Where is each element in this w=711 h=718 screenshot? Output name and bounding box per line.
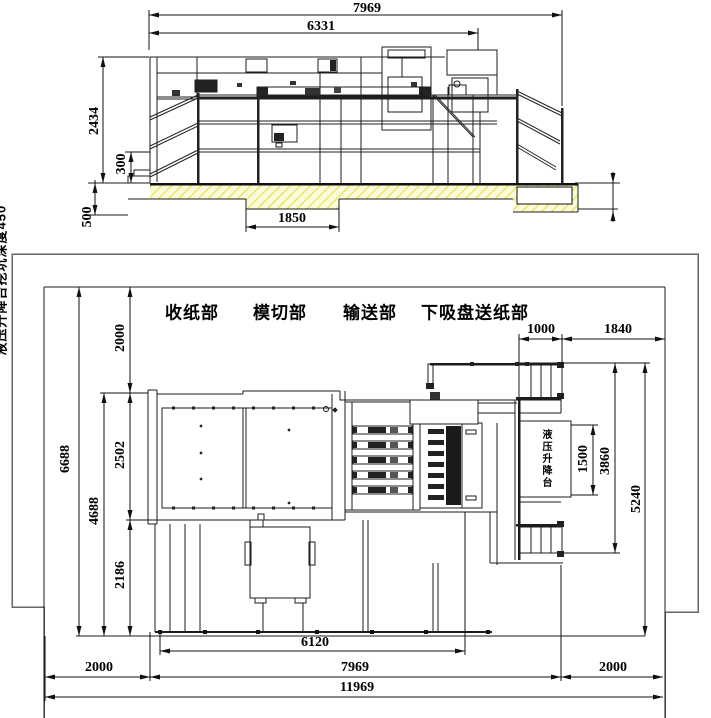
dim-11969: 11969 — [340, 681, 374, 695]
lift-pit-box — [517, 187, 572, 204]
dim-7969-top: 7969 — [353, 2, 381, 16]
dim-2502: 2502 — [114, 441, 128, 469]
dim-5240: 5240 — [630, 485, 644, 513]
elevation-view-linework — [88, 10, 620, 232]
dim-7969-plan: 7969 — [341, 661, 369, 675]
room-walls — [44, 287, 665, 718]
dim-1500: 1500 — [577, 445, 591, 473]
section-label-feeder: 下吸盘送纸部 — [421, 305, 529, 322]
dim-1000: 1000 — [527, 323, 555, 337]
lift-platform-label: 液压升降台 — [540, 429, 550, 489]
drawing-linework — [0, 0, 711, 718]
dim-2434: 2434 — [88, 107, 102, 135]
control-cabinet — [245, 514, 315, 603]
dim-6688: 6688 — [59, 445, 73, 473]
dim-2000-top: 2000 — [114, 324, 128, 352]
table-ticks — [172, 407, 338, 510]
dim-6120: 6120 — [301, 636, 329, 650]
dim-3860: 3860 — [599, 447, 613, 475]
dim-4688: 4688 — [88, 497, 102, 525]
dim-6331: 6331 — [307, 20, 335, 34]
dim-300: 300 — [115, 154, 129, 175]
technical-drawing: 7969 6331 2434 300 500 1850 液压升降台挖坑深度450… — [0, 0, 711, 718]
section-label-conveyor: 输送部 — [343, 305, 397, 322]
conveyor-rollers — [353, 426, 412, 494]
pit-depth-note: 液压升降台挖坑深度450 — [0, 0, 10, 356]
section-label-diecut: 模切部 — [253, 305, 307, 322]
section-label-delivery: 收纸部 — [165, 305, 219, 322]
dim-1840: 1840 — [604, 323, 632, 337]
elevation-railing — [150, 89, 562, 183]
dim-2000-left: 2000 — [85, 661, 113, 675]
dim-2186: 2186 — [114, 561, 128, 589]
dim-500: 500 — [81, 207, 95, 228]
dim-1850: 1850 — [278, 212, 306, 226]
dim-2000-right: 2000 — [599, 661, 627, 675]
